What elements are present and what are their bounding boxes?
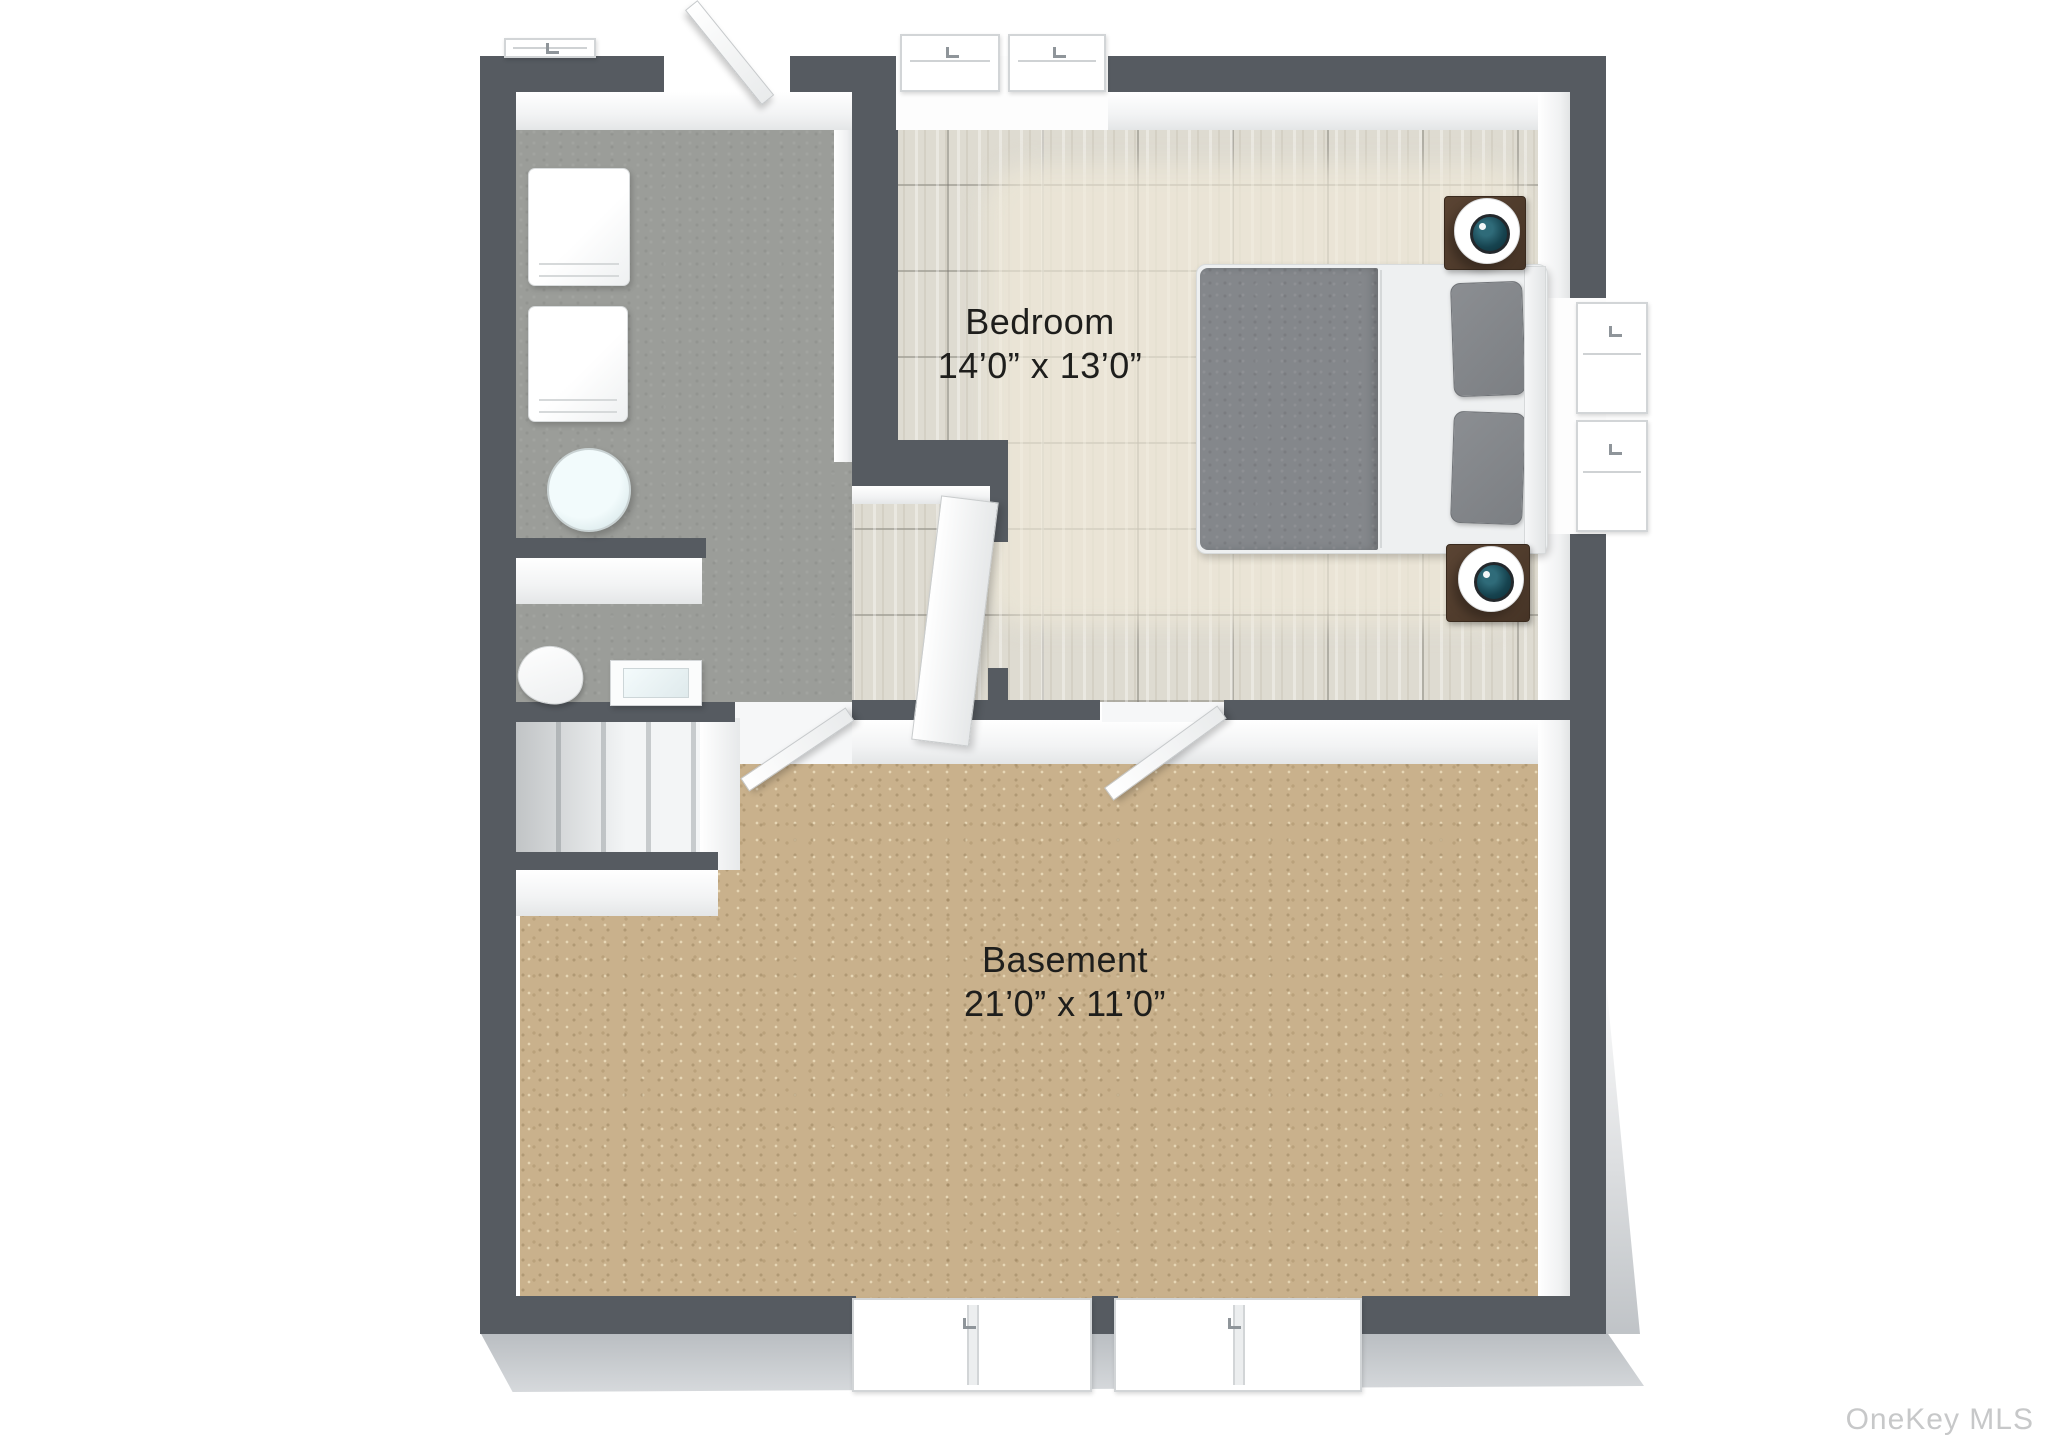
- staircase: [516, 722, 700, 852]
- exterior-wall-east: [1570, 56, 1606, 298]
- partition-wall-face: [834, 130, 852, 462]
- stair-side-wall: [700, 718, 740, 870]
- window: [852, 1298, 1092, 1392]
- bedroom-dimensions: 14’0” x 13’0”: [850, 344, 1230, 388]
- exterior-wall-north: [790, 56, 896, 92]
- onekey-mls-watermark: OneKey MLS: [1846, 1403, 2034, 1437]
- window: [1114, 1298, 1362, 1392]
- bedroom-south-wall: [852, 700, 1100, 720]
- basement-name: Basement: [870, 938, 1260, 982]
- bed-headboard: [1524, 266, 1546, 554]
- exterior-wall-west: [480, 56, 516, 1334]
- pillow: [1450, 281, 1526, 397]
- window: [1008, 34, 1106, 92]
- exterior-wall-north: [1108, 56, 1606, 92]
- closet-jamb: [988, 668, 1008, 702]
- bedroom-name: Bedroom: [850, 300, 1230, 344]
- basement-dimensions: 21’0” x 11’0”: [870, 982, 1260, 1026]
- exterior-wall-east: [1570, 534, 1606, 1334]
- partition-wall: [852, 92, 898, 462]
- table-lamp: [1454, 198, 1520, 264]
- window: [900, 34, 1000, 92]
- dryer: [528, 306, 628, 422]
- washer: [528, 168, 630, 286]
- water-heater: [547, 448, 631, 532]
- window: [504, 38, 596, 58]
- basement-label: Basement 21’0” x 11’0”: [870, 938, 1260, 1026]
- bedroom-label: Bedroom 14’0” x 13’0”: [850, 300, 1230, 388]
- window: [1576, 302, 1648, 414]
- pillow: [1450, 411, 1526, 525]
- sink-vanity: [610, 660, 702, 706]
- window: [1576, 420, 1648, 532]
- stair-wall-face: [516, 870, 718, 916]
- floor-plan-canvas: Bedroom 14’0” x 13’0” Basement 21’0” x 1…: [0, 0, 2048, 1447]
- table-lamp: [1458, 546, 1524, 612]
- building-drop-shadow-right: [1604, 960, 1640, 1334]
- bathroom-stub-wall-face: [516, 558, 702, 604]
- exterior-wall-south: [1362, 1296, 1606, 1334]
- exterior-wall-south: [480, 1296, 856, 1334]
- closet-top-wall: [852, 440, 1008, 486]
- bedroom-south-wall: [1224, 700, 1570, 720]
- entry-door-leaf: [685, 0, 774, 105]
- bed-sheet-fold: [1380, 270, 1382, 548]
